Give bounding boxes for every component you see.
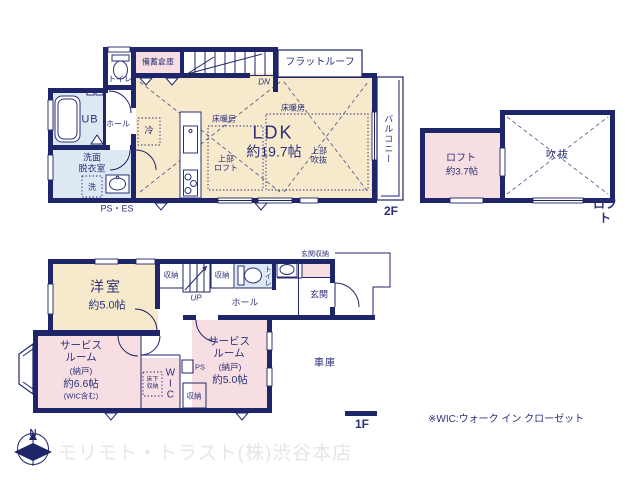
ps-niche <box>182 360 193 373</box>
label-flat-roof: フラットルーフ <box>285 57 354 69</box>
label-stairs-dn: DN <box>258 77 270 86</box>
room-size-service1: 約6.6帖 <box>63 378 99 390</box>
room-type-service1: (納戸) <box>70 366 93 376</box>
label-upper-loft: 上部 ロフト <box>214 155 238 174</box>
room-label-loft: ロフト <box>446 153 476 165</box>
room-label-toilet-1f: トイレ <box>263 266 271 287</box>
room-size-loft: 約3.7帖 <box>446 166 478 177</box>
floor-label-2f: 2F <box>384 204 398 218</box>
label-balcony: バルコニー <box>383 114 394 164</box>
floor-label-1f: 1F <box>355 417 369 431</box>
label-closet-b: 収納 <box>215 272 230 281</box>
floor-plan-page: トイレ 備蓄倉庫 フラットルーフ DN UB ホール 洗面 脱衣室 洗 PS・E… <box>0 0 640 480</box>
wic-note: ※WIC:ウォーク イン クローゼット <box>428 414 584 426</box>
stairs-2f <box>187 52 273 76</box>
floor-label-loft: ロフト <box>588 197 623 225</box>
bay-window-outline <box>19 344 33 394</box>
floor-plan-drawing <box>0 0 640 480</box>
room-size-western: 約5.0帖 <box>88 300 125 313</box>
room-label-stock-storage: 備蓄倉庫 <box>142 57 174 66</box>
room-label-garage: 車庫 <box>314 358 336 370</box>
watermark: モリモト・トラスト(株)渋谷本店 <box>58 443 352 465</box>
label-floor-heating-b: 床暖房 <box>281 103 305 112</box>
room-label-ub: UB <box>81 114 98 127</box>
room-type-service2: (納戸) <box>219 362 242 372</box>
scale-bar-1f <box>345 411 377 416</box>
room-label-toilet-2f: トイレ <box>108 74 132 83</box>
kitchen-counter <box>180 112 201 198</box>
label-ps-es: PS・ES <box>100 204 133 215</box>
label-closet-c: 収納 <box>187 393 202 402</box>
room-label-wic: WIC <box>164 368 176 401</box>
label-void: 吹抜 <box>546 150 570 162</box>
label-entrance-storage: 玄関収納 <box>301 251 329 259</box>
label-closet-a: 収納 <box>164 272 179 281</box>
room-size-service2: 約5.0帖 <box>212 374 248 386</box>
room-label-service2: サービス ルーム <box>208 336 250 361</box>
room-label-hall-2f: ホール <box>106 119 130 128</box>
label-washer: 洗 <box>88 182 96 191</box>
label-underfloor-storage: 床下 収納 <box>146 377 158 391</box>
label-ps: PS <box>195 364 205 373</box>
toilet-1f-icon <box>238 266 262 285</box>
western-room-floor <box>53 264 158 330</box>
compass-north-label: N <box>29 428 36 440</box>
room-label-hall-1f: ホール <box>231 298 258 309</box>
room-label-western: 洋室 <box>90 279 122 296</box>
label-floor-heating-a: 床暖房 <box>212 114 236 123</box>
stairs-1f <box>183 261 210 292</box>
room-label-entrance: 玄関 <box>310 290 328 301</box>
room-label-washroom: 洗面 脱衣室 <box>78 152 105 173</box>
room-note-service1: (WIC含む) <box>64 393 99 402</box>
room-label-ldk: LDK <box>252 122 293 143</box>
washbasin-2f-icon <box>106 175 129 193</box>
label-fridge: 冷 <box>144 126 153 137</box>
bathtub-icon <box>55 96 80 142</box>
room-size-ldk: 約19.7帖 <box>246 144 301 161</box>
label-stairs-up: UP <box>190 293 201 302</box>
room-label-service1: サービス ルーム <box>60 340 102 365</box>
label-upper-void: 上部 吹抜 <box>311 147 327 166</box>
